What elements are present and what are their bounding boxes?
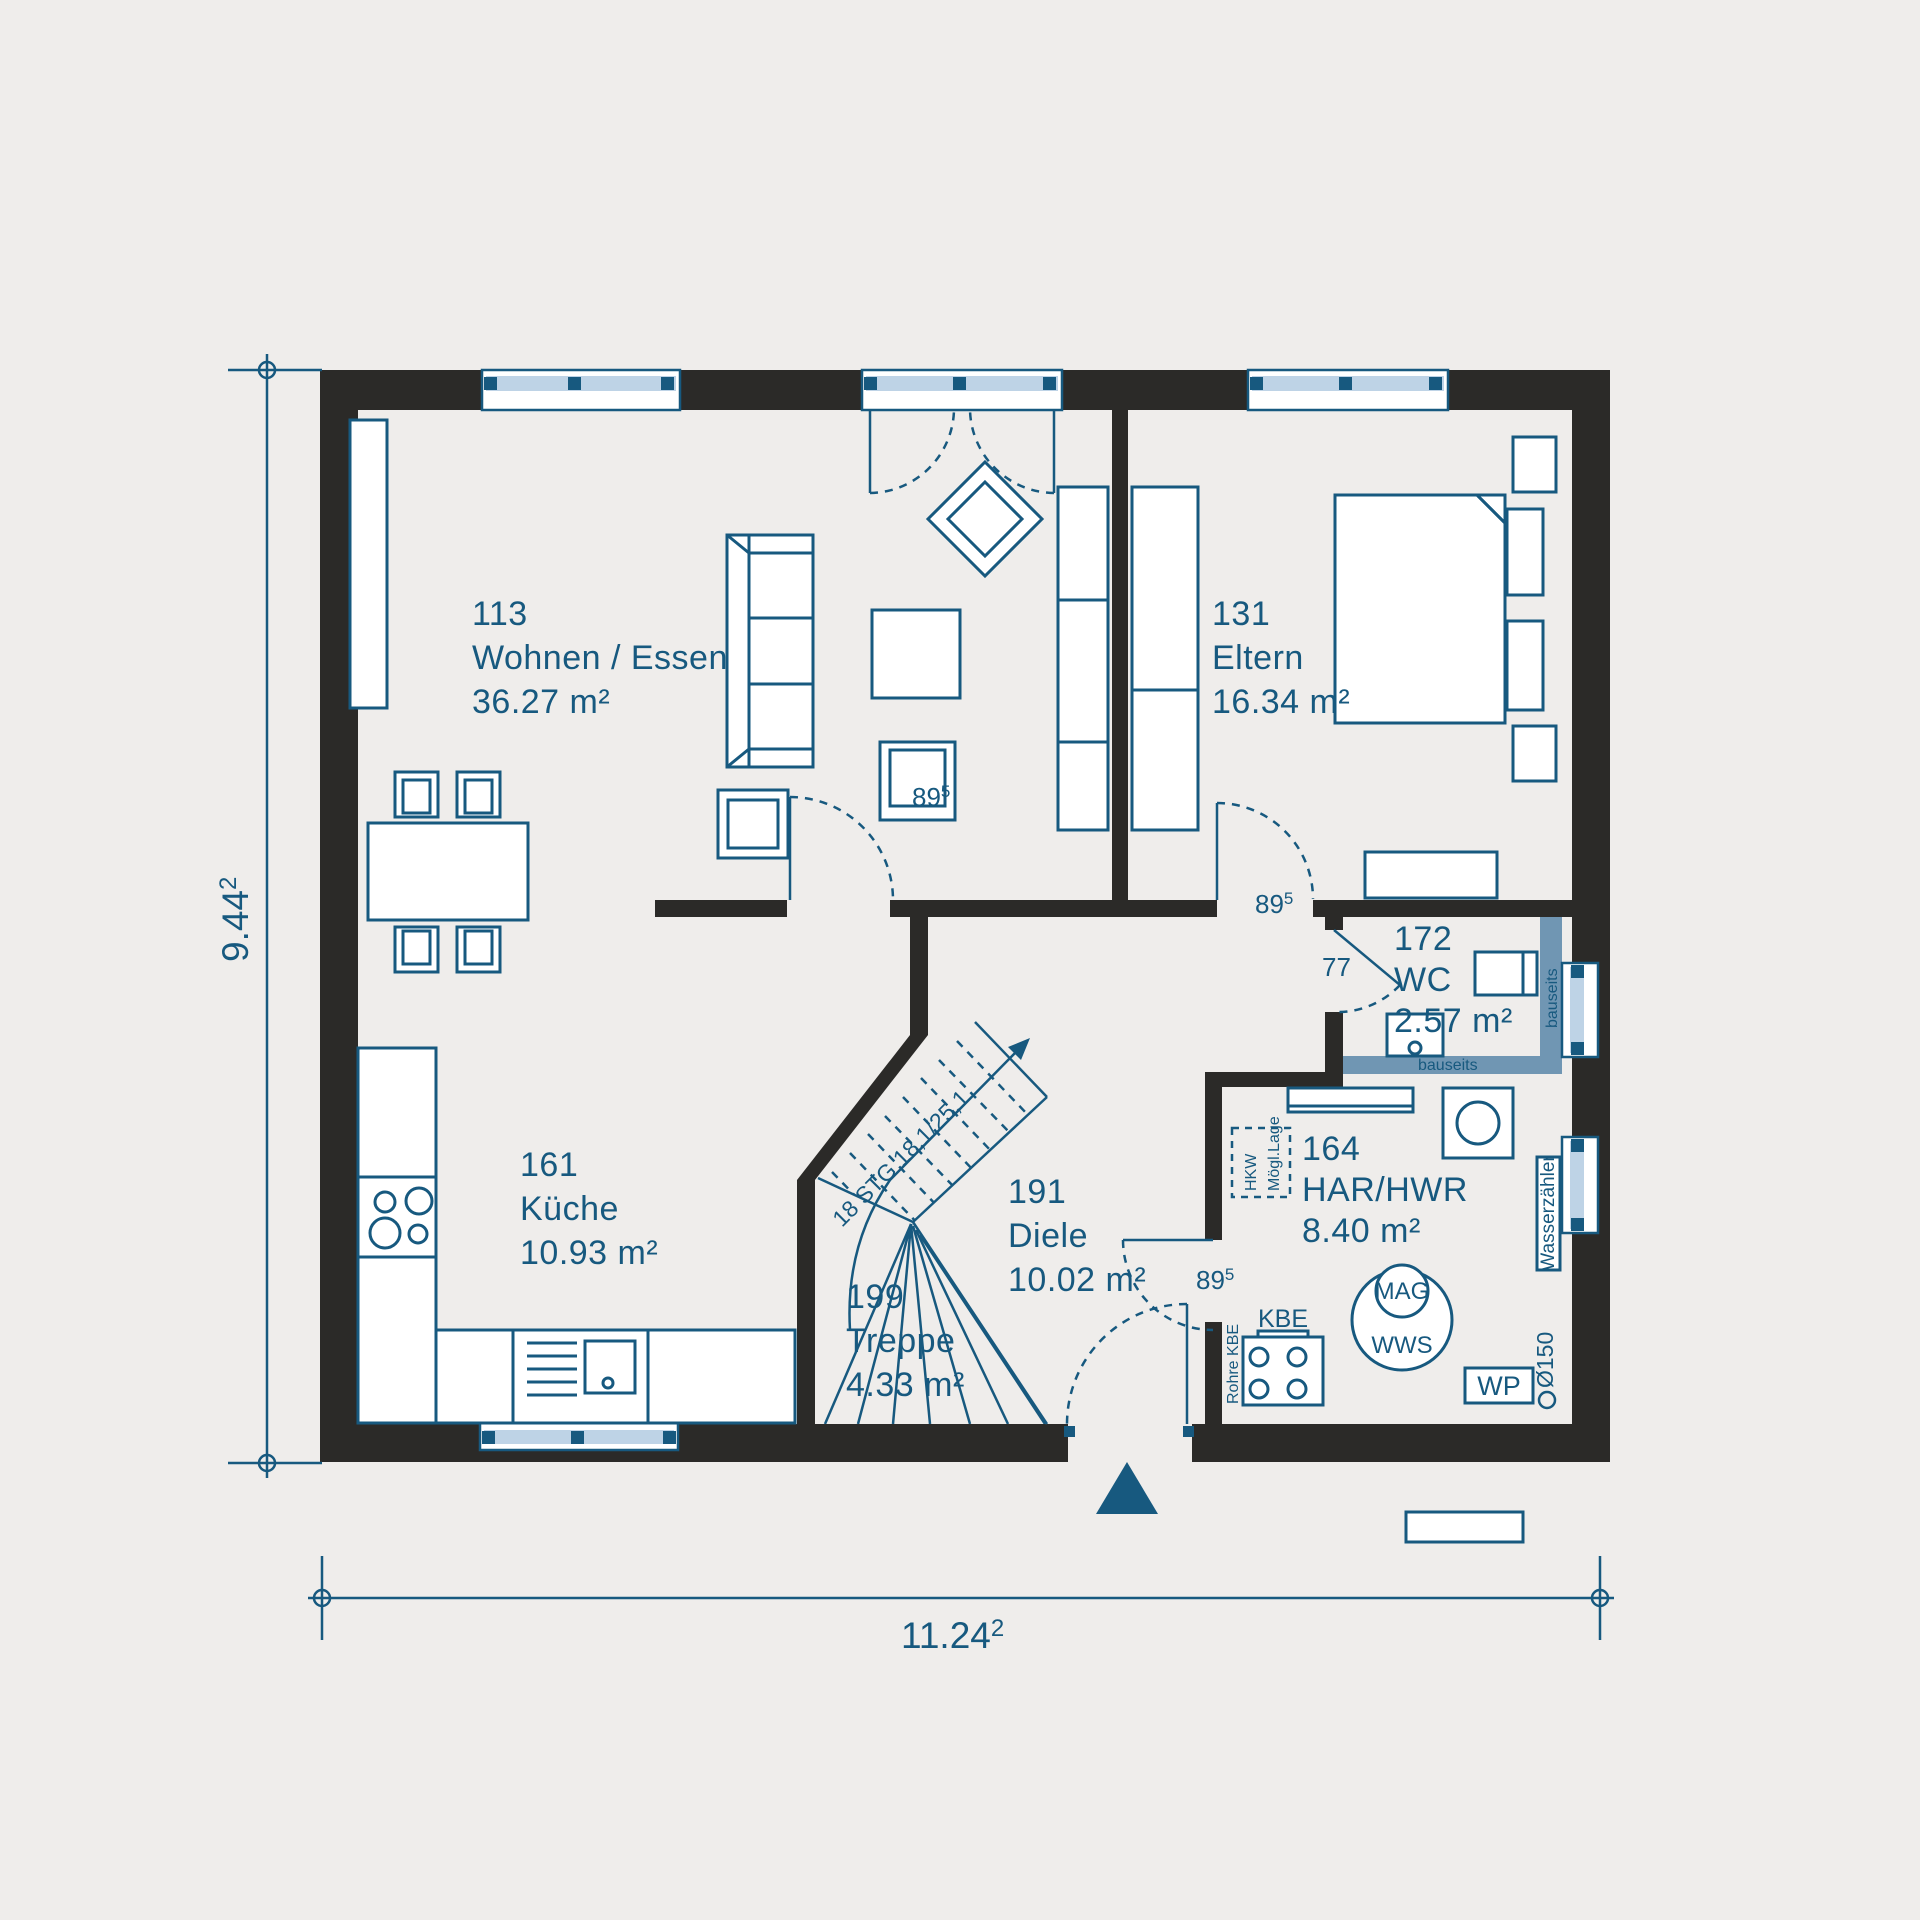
svg-text:131: 131 [1212,595,1270,633]
har-shelf [1288,1088,1413,1112]
wall-mid-center [890,900,1217,917]
wall-stair-stub [910,917,928,1035]
bauseits-label-vertical: bauseits [1544,968,1561,1028]
wall-wc-left-top-stub [1325,917,1343,930]
side-table [718,790,788,858]
wws-label: WWS [1371,1332,1432,1359]
wasserzaehler-label: Wasserzähler [1538,1155,1559,1271]
wall-kitchen-stair [797,1180,815,1424]
svg-text:36.27 m²: 36.27 m² [472,683,610,721]
door-width-wc: 77 [1322,952,1351,982]
wall-mid-right [1313,900,1572,917]
wall-wc-left-bottom-stub [1325,1012,1343,1074]
cabinet-left-wall [350,420,387,708]
wall-partition-living-parents [1112,410,1128,900]
svg-text:4.33 m²: 4.33 m² [846,1366,965,1404]
svg-text:8.40 m²: 8.40 m² [1302,1212,1421,1250]
washing-machine [1443,1088,1513,1158]
svg-text:Küche: Küche [520,1190,619,1228]
dresser [1365,852,1497,898]
wp-label: WP [1477,1371,1521,1401]
svg-text:16.34 m²: 16.34 m² [1212,683,1350,721]
mag-label: MAG [1375,1278,1430,1305]
sofa [727,535,813,767]
counter-left [358,1257,436,1423]
svg-text:2.57 m²: 2.57 m² [1394,1002,1513,1040]
kbe-label: KBE [1258,1305,1308,1333]
svg-text:10.02 m²: 10.02 m² [1008,1261,1146,1299]
pillow [1507,621,1543,710]
svg-text:113: 113 [472,595,528,633]
svg-text:Treppe: Treppe [846,1322,955,1360]
counter-bottom [436,1330,795,1423]
entrance-opening [1068,1424,1192,1462]
svg-text:10.93 m²: 10.93 m² [520,1234,658,1272]
svg-text:164: 164 [1302,1130,1360,1168]
dining-table [368,823,528,920]
nightstand-top [1513,437,1556,492]
wall-wc-har-horizontal [1205,1072,1343,1087]
outdoor-unit [1406,1512,1523,1542]
pillow [1507,509,1543,595]
svg-text:Wohnen / Essen: Wohnen / Essen [472,639,728,677]
svg-text:191: 191 [1008,1173,1066,1211]
rohre-kbe-label: Rohre KBE [1225,1324,1242,1404]
wardrobe-living-side [1058,487,1108,830]
floorplan-drawing: 113 Wohnen / Essen 36.27 m² 131 Eltern 1… [0,0,1920,1920]
wc-sink [1475,952,1537,995]
window-wc [1562,963,1598,1057]
entrance-jamb-right [1183,1426,1194,1437]
d150-label: Ø150 [1532,1332,1558,1388]
svg-text:172: 172 [1394,920,1452,958]
dimension-width: 11.242 [901,1615,1004,1656]
nightstand-bottom [1513,726,1556,781]
wall-har-left-upper [1205,1087,1222,1240]
wall-right [1572,410,1610,1462]
bauseits-label-horizontal: bauseits [1418,1057,1478,1074]
wall-har-left-lower [1205,1322,1222,1424]
svg-text:HAR/HWR: HAR/HWR [1302,1171,1468,1209]
wardrobe-parents-side [1132,487,1198,830]
entrance-jamb-left [1064,1426,1075,1437]
hkw-label-1: HKW [1243,1153,1260,1191]
coffee-table [872,610,960,698]
svg-text:Diele: Diele [1008,1217,1088,1255]
svg-text:161: 161 [520,1146,578,1184]
hkw-label-2: Mögl.Lage [1266,1116,1283,1191]
window-har [1562,1137,1598,1233]
svg-text:199: 199 [846,1278,904,1316]
fridge [358,1048,436,1177]
window-living [482,370,680,410]
floorplan-page: 113 Wohnen / Essen 36.27 m² 131 Eltern 1… [0,0,1920,1920]
wall-mid-left [655,900,787,917]
kbe-box [1243,1331,1323,1405]
svg-text:Eltern: Eltern [1212,639,1304,677]
svg-text:WC: WC [1394,961,1452,999]
window-parents [1248,370,1448,410]
